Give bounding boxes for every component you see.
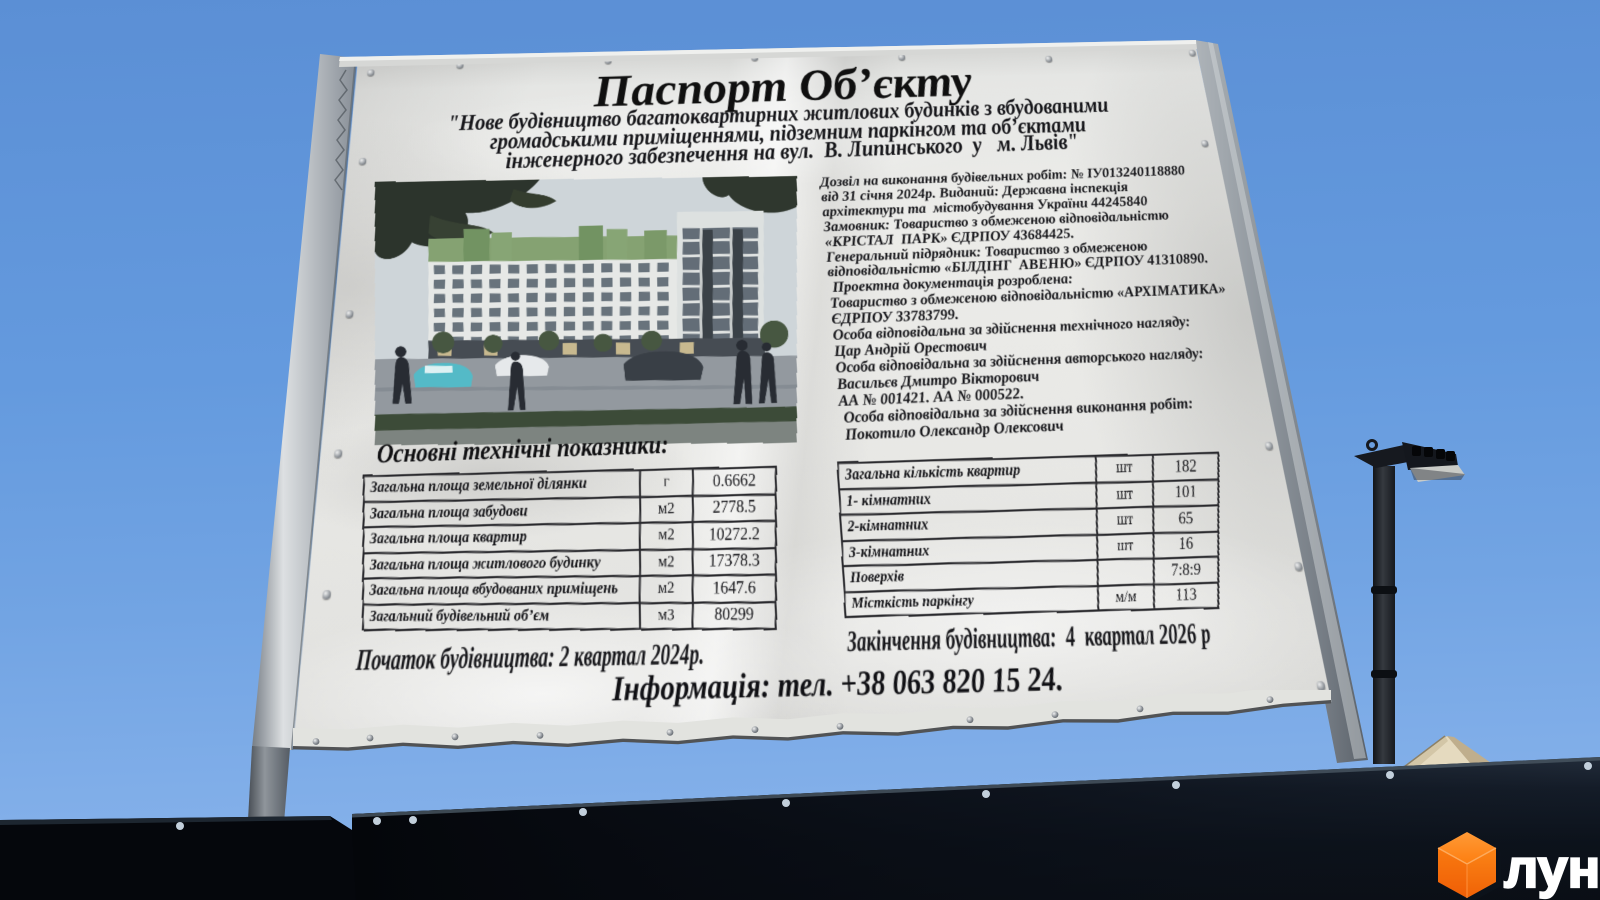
svg-text:лун: лун [1504,839,1600,899]
